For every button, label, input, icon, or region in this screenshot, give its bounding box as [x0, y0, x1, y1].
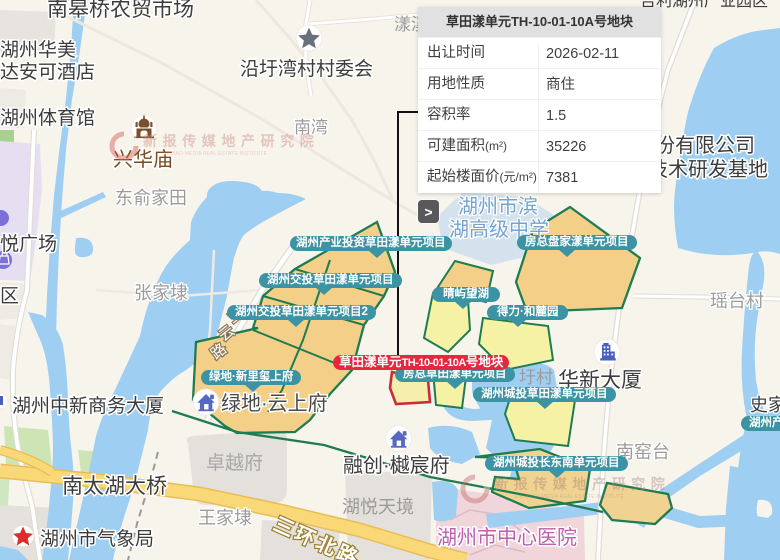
svg-text:绿地·云上府: 绿地·云上府: [221, 392, 328, 415]
svg-text:份有限公司: 份有限公司: [655, 134, 755, 157]
svg-text:湖州中新商务大厦: 湖州中新商务大厦: [12, 395, 164, 417]
svg-text:湖州体育馆: 湖州体育馆: [0, 107, 95, 129]
svg-text:南太湖大桥: 南太湖大桥: [62, 475, 167, 498]
svg-text:湖州市气象局: 湖州市气象局: [40, 528, 154, 550]
svg-text:湖州市滨: 湖州市滨: [458, 195, 538, 218]
svg-text:卓越府: 卓越府: [206, 452, 263, 474]
svg-text:张家埭: 张家埭: [134, 283, 188, 303]
svg-text:沿圩湾村村委会: 沿圩湾村村委会: [240, 58, 373, 80]
svg-text:新报传媒地产研究院: 新报传媒地产研究院: [494, 476, 670, 492]
svg-text:悦广场: 悦广场: [0, 233, 57, 255]
svg-text:ZHUANGX MEDIA REAL ESTATE INST: ZHUANGX MEDIA REAL ESTATE INSTITUTE: [514, 494, 624, 500]
svg-text:王家埭: 王家埭: [198, 508, 252, 528]
svg-text:XINBAO MEDIA REAL ESTATE INSTI: XINBAO MEDIA REAL ESTATE INSTITUTE: [163, 151, 268, 157]
svg-text:湖州市中心医院: 湖州市中心医院: [437, 526, 577, 549]
svg-text:南皋桥农贸市场: 南皋桥农贸市场: [47, 0, 194, 21]
svg-text:瑶台村: 瑶台村: [710, 291, 764, 311]
svg-text:技术研发基地: 技术研发基地: [648, 158, 768, 181]
svg-text:湖悦天境: 湖悦天境: [342, 497, 414, 517]
svg-text:圩村: 圩村: [519, 368, 553, 387]
svg-text:区: 区: [0, 286, 19, 307]
svg-text:新报传媒地产研究院: 新报传媒地产研究院: [143, 133, 319, 149]
svg-text:融创·樾宸府: 融创·樾宸府: [343, 454, 450, 477]
svg-text:达安可酒店: 达安可酒店: [0, 61, 95, 83]
svg-text:东俞家田: 东俞家田: [115, 188, 187, 208]
svg-text:湖州华美: 湖州华美: [0, 39, 76, 61]
svg-text:史家: 史家: [750, 395, 780, 415]
